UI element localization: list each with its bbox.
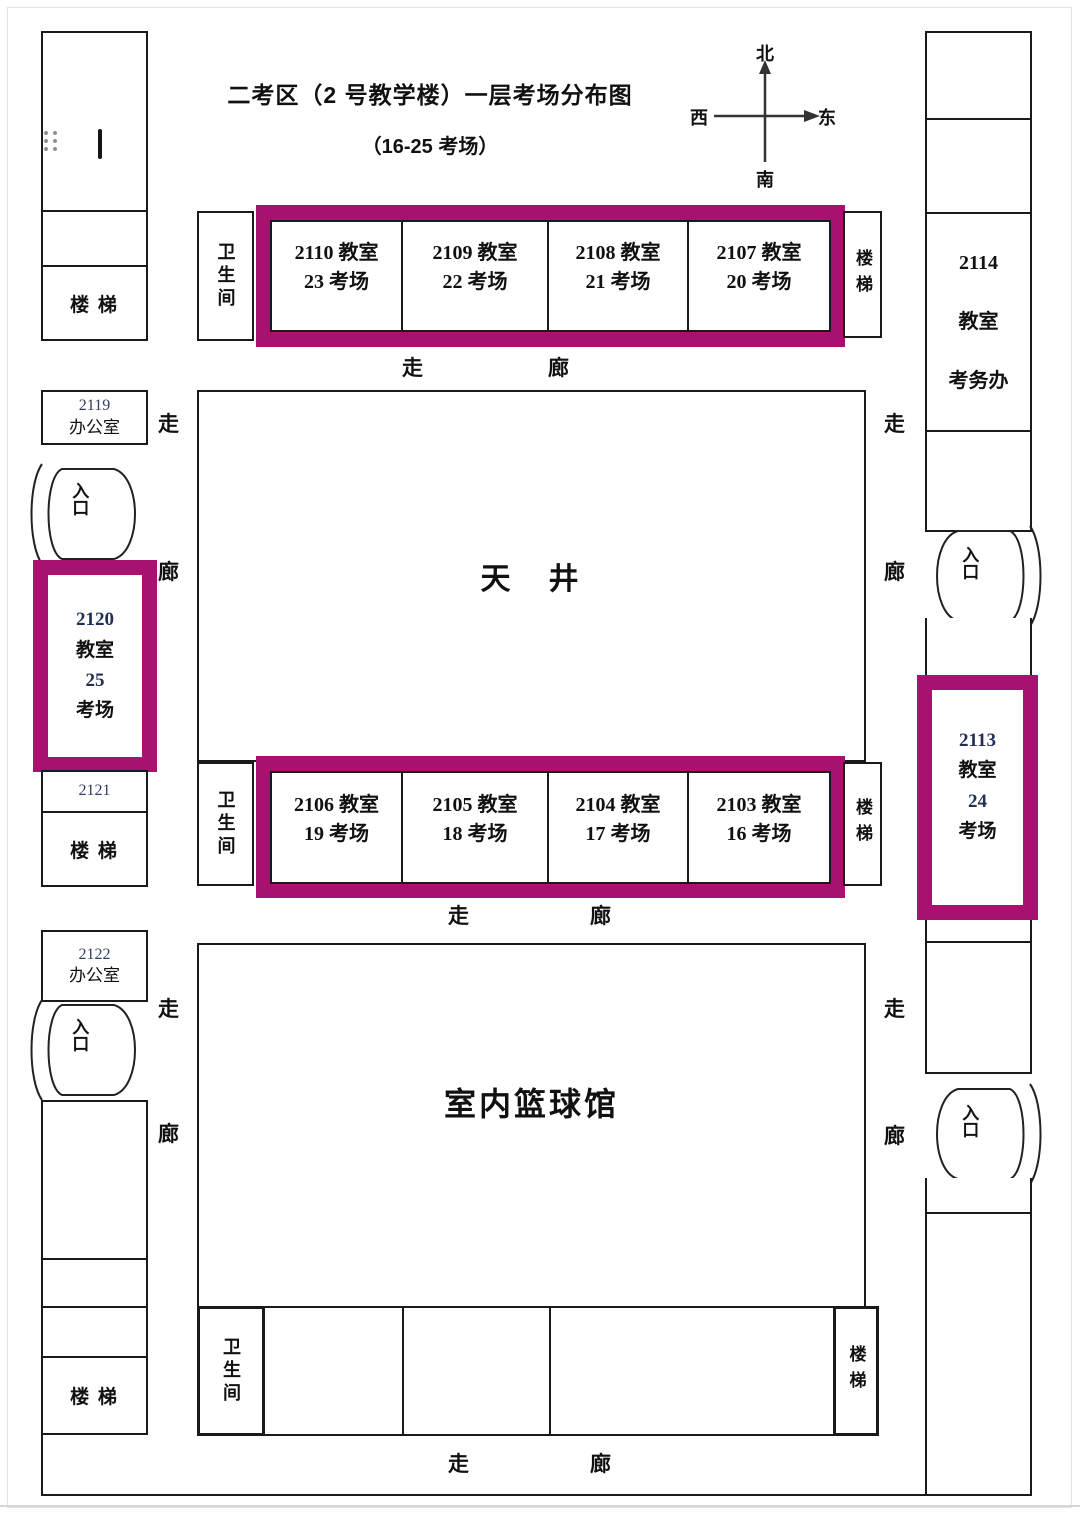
room-empty-east-2 bbox=[925, 118, 1032, 214]
toilet-bottom: 卫生间 bbox=[197, 1306, 265, 1436]
page-subtitle: （16-25 考场） bbox=[205, 130, 655, 159]
room-2120: 2120 教室 25 考场 bbox=[48, 575, 142, 757]
stairs-west-top: 楼 梯 bbox=[41, 265, 148, 341]
exam-room-name: 2104 教室 bbox=[576, 791, 661, 820]
office-2122: 2122 办公室 bbox=[41, 930, 148, 1002]
exam-room-name: 2105 教室 bbox=[433, 791, 518, 820]
room-2121-number: 2121 bbox=[79, 781, 111, 802]
exam-room-2110: 2110 教室 23 考场 bbox=[272, 222, 401, 330]
exam-room-2107: 2107 教室 20 考场 bbox=[687, 222, 829, 330]
page-bottom-edge bbox=[0, 1505, 1080, 1507]
stairs-west-bottom: 楼 梯 bbox=[41, 1356, 148, 1435]
room-2120-line4: 考场 bbox=[76, 696, 114, 726]
corridor-label-west-upper-zou: 走 bbox=[158, 408, 179, 438]
compass-west-label: 西 bbox=[690, 104, 708, 130]
wall-segment-east-3 bbox=[925, 1178, 1032, 1214]
text-cursor-mark bbox=[98, 129, 102, 159]
exam-room-2104: 2104 教室 17 考场 bbox=[547, 773, 687, 882]
room-2114-line3: 考务办 bbox=[949, 364, 1009, 393]
exam-row-middle: 2106 教室 19 考场 2105 教室 18 考场 2104 教室 17 考… bbox=[270, 771, 831, 884]
corridor-label-middle-lang: 廊 bbox=[590, 900, 611, 930]
exam-session: 19 考场 bbox=[304, 820, 369, 849]
room-2121: 2121 bbox=[41, 770, 148, 813]
bottom-row-rooms bbox=[263, 1306, 835, 1436]
compass-icon: 北 南 西 东 bbox=[690, 40, 840, 190]
exam-room-name: 2109 教室 bbox=[433, 239, 518, 268]
compass-south-label: 南 bbox=[756, 166, 774, 192]
corridor-label-top-zou: 走 bbox=[402, 352, 423, 382]
entrance-door-icon bbox=[918, 524, 1046, 628]
corridor-label-east-lower-zou: 走 bbox=[884, 993, 905, 1023]
wall-segment-bottom bbox=[41, 1494, 1031, 1496]
corridor-label-west-lower-lang: 廊 bbox=[158, 1118, 179, 1148]
room-empty-east-4 bbox=[925, 941, 1032, 1074]
room-2120-line2: 教室 bbox=[76, 636, 114, 666]
entrance-door-icon bbox=[26, 462, 154, 566]
stairs-middle-right: 楼梯 bbox=[843, 762, 882, 886]
office-2122-label: 办公室 bbox=[69, 965, 120, 987]
exam-session: 20 考场 bbox=[727, 268, 792, 297]
exam-room-name: 2108 教室 bbox=[576, 239, 661, 268]
entrance-west-lower: 入口 bbox=[26, 998, 154, 1102]
exam-session: 22 考场 bbox=[443, 268, 508, 297]
exam-session: 23 考场 bbox=[304, 268, 369, 297]
floor-plan-page: 二考区（2 号教学楼）一层考场分布图 （16-25 考场） 北 南 西 东 楼 … bbox=[0, 0, 1080, 1516]
courtyard-label: 天 井 bbox=[481, 554, 583, 598]
room-empty-east-3 bbox=[925, 430, 1032, 532]
exam-row-top: 2110 教室 23 考场 2109 教室 22 考场 2108 教室 21 考… bbox=[270, 220, 831, 332]
corridor-label-east-upper-zou: 走 bbox=[884, 408, 905, 438]
corridor-label-east-upper-lang: 廊 bbox=[884, 556, 905, 586]
wall-segment-west bbox=[41, 1433, 43, 1495]
exam-room-2103: 2103 教室 16 考场 bbox=[687, 773, 829, 882]
office-2119-number: 2119 bbox=[79, 396, 110, 417]
entrance-door-icon bbox=[26, 998, 154, 1102]
exam-session: 18 考场 bbox=[443, 820, 508, 849]
exam-room-2108: 2108 教室 21 考场 bbox=[547, 222, 687, 330]
stairs-top-right: 楼梯 bbox=[843, 211, 882, 338]
entrance-label: 入口 bbox=[68, 1018, 89, 1052]
drag-handle-icon[interactable] bbox=[44, 131, 59, 155]
exam-room-name: 2106 教室 bbox=[294, 791, 379, 820]
exam-room-name: 2107 教室 bbox=[717, 239, 802, 268]
stairs-bottom-right: 楼梯 bbox=[833, 1306, 879, 1436]
entrance-label: 入口 bbox=[68, 482, 89, 516]
room-2113-line3: 24 bbox=[968, 787, 987, 817]
entrance-label: 入口 bbox=[958, 1104, 979, 1138]
basketball-gym-label: 室内篮球馆 bbox=[444, 1079, 619, 1125]
exam-room-name: 2103 教室 bbox=[717, 791, 802, 820]
room-empty-west-4 bbox=[41, 1258, 148, 1308]
room-empty-bottom-2 bbox=[402, 1308, 549, 1434]
room-empty-east-1 bbox=[925, 31, 1032, 120]
exam-room-2106: 2106 教室 19 考场 bbox=[272, 773, 401, 882]
room-2113: 2113 教室 24 考场 bbox=[932, 690, 1023, 905]
room-2113-line2: 教室 bbox=[958, 756, 996, 786]
corridor-label-east-lower-lang: 廊 bbox=[884, 1120, 905, 1150]
corridor-label-west-upper-lang: 廊 bbox=[158, 556, 179, 586]
exam-room-name: 2110 教室 bbox=[295, 239, 379, 268]
toilet-middle: 卫生间 bbox=[197, 762, 254, 886]
room-empty-bottom-1 bbox=[265, 1308, 402, 1434]
room-empty-west-3 bbox=[41, 1100, 148, 1260]
exam-session: 16 考场 bbox=[727, 820, 792, 849]
room-2114-line2: 教室 bbox=[959, 305, 999, 334]
toilet-top: 卫生间 bbox=[197, 211, 254, 341]
room-2114: 2114 教室 考务办 bbox=[925, 212, 1032, 432]
entrance-east-upper: 入口 bbox=[918, 524, 1046, 632]
room-empty-west-1 bbox=[41, 31, 148, 212]
basketball-gym: 室内篮球馆 bbox=[197, 943, 866, 1310]
room-empty-west-5 bbox=[41, 1306, 148, 1358]
entrance-door-icon bbox=[918, 1082, 1046, 1186]
office-2119: 2119 办公室 bbox=[41, 390, 148, 445]
room-2120-line3: 25 bbox=[86, 666, 105, 696]
room-empty-west-2 bbox=[41, 210, 148, 267]
entrance-west-upper: 入口 bbox=[26, 462, 154, 566]
exam-session: 21 考场 bbox=[586, 268, 651, 297]
room-2113-line4: 考场 bbox=[958, 817, 996, 847]
room-2113-number: 2113 bbox=[959, 726, 996, 756]
corridor-label-middle-zou: 走 bbox=[448, 900, 469, 930]
room-2114-number: 2114 bbox=[959, 252, 998, 275]
exam-room-2105: 2105 教室 18 考场 bbox=[401, 773, 547, 882]
corridor-label-top-lang: 廊 bbox=[548, 352, 569, 382]
office-2119-label: 办公室 bbox=[69, 417, 120, 439]
room-empty-east-5 bbox=[925, 1212, 1032, 1496]
entrance-east-lower: 入口 bbox=[918, 1082, 1046, 1190]
exam-room-2109: 2109 教室 22 考场 bbox=[401, 222, 547, 330]
office-2122-number: 2122 bbox=[79, 945, 111, 966]
room-empty-bottom-3 bbox=[549, 1308, 833, 1434]
page-title: 二考区（2 号教学楼）一层考场分布图 bbox=[205, 76, 655, 110]
room-2120-number: 2120 bbox=[76, 605, 114, 635]
corridor-label-bottom-lang: 廊 bbox=[590, 1448, 611, 1478]
exam-session: 17 考场 bbox=[586, 820, 651, 849]
compass-east-label: 东 bbox=[818, 104, 836, 130]
corridor-label-west-lower-zou: 走 bbox=[158, 993, 179, 1023]
entrance-label: 入口 bbox=[958, 546, 979, 580]
compass-north-label: 北 bbox=[756, 40, 774, 66]
stairs-west-middle: 楼 梯 bbox=[41, 811, 148, 887]
courtyard: 天 井 bbox=[197, 390, 866, 762]
corridor-label-bottom-zou: 走 bbox=[448, 1448, 469, 1478]
